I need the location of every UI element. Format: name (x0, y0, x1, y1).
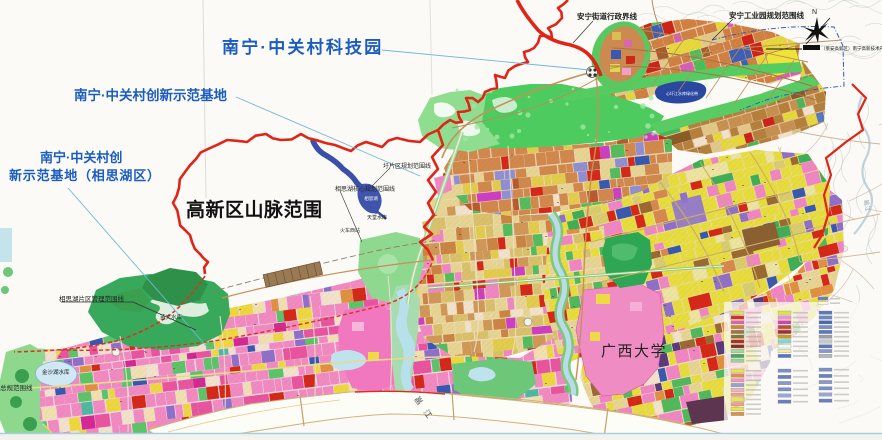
svg-text:相思湖核心规划范围线: 相思湖核心规划范围线 (335, 185, 395, 193)
svg-text:天堂水库: 天堂水库 (367, 214, 387, 221)
svg-text:金沙湖水库: 金沙湖水库 (42, 368, 70, 376)
svg-text:（莱安高新区）南宁高新技术产业开发区总体规划图: （莱安高新区）南宁高新技术产业开发区总体规划图 (821, 45, 882, 52)
svg-text:新示范基地（相思湖区）: 新示范基地（相思湖区） (9, 168, 161, 183)
svg-text:安宁工业园规划范围线: 安宁工业园规划范围线 (729, 10, 804, 20)
svg-text:南宁·中关村创: 南宁·中关村创 (40, 150, 122, 165)
svg-text:南宁·中关村创新示范基地: 南宁·中关村创新示范基地 (74, 87, 227, 103)
svg-text:相思湖片区管理范围线: 相思湖片区管理范围线 (59, 294, 125, 303)
svg-text:总规范围线: 总规范围线 (0, 383, 33, 392)
svg-text:苗文水库: 苗文水库 (160, 313, 183, 321)
svg-text:广西大学: 广西大学 (601, 343, 667, 360)
svg-text:N: N (812, 9, 817, 16)
svg-text:圩片区规划范围线: 圩片区规划范围线 (383, 162, 431, 170)
svg-text:高新区山脉范围: 高新区山脉范围 (186, 198, 323, 221)
svg-text:心圩江水库绿化带: 心圩江水库绿化带 (666, 90, 698, 96)
svg-text:安宁街道行政界线: 安宁街道行政界线 (577, 11, 637, 21)
svg-text:南宁·中关村科技园: 南宁·中关村科技园 (222, 37, 383, 57)
svg-text:相思湖: 相思湖 (364, 195, 378, 202)
